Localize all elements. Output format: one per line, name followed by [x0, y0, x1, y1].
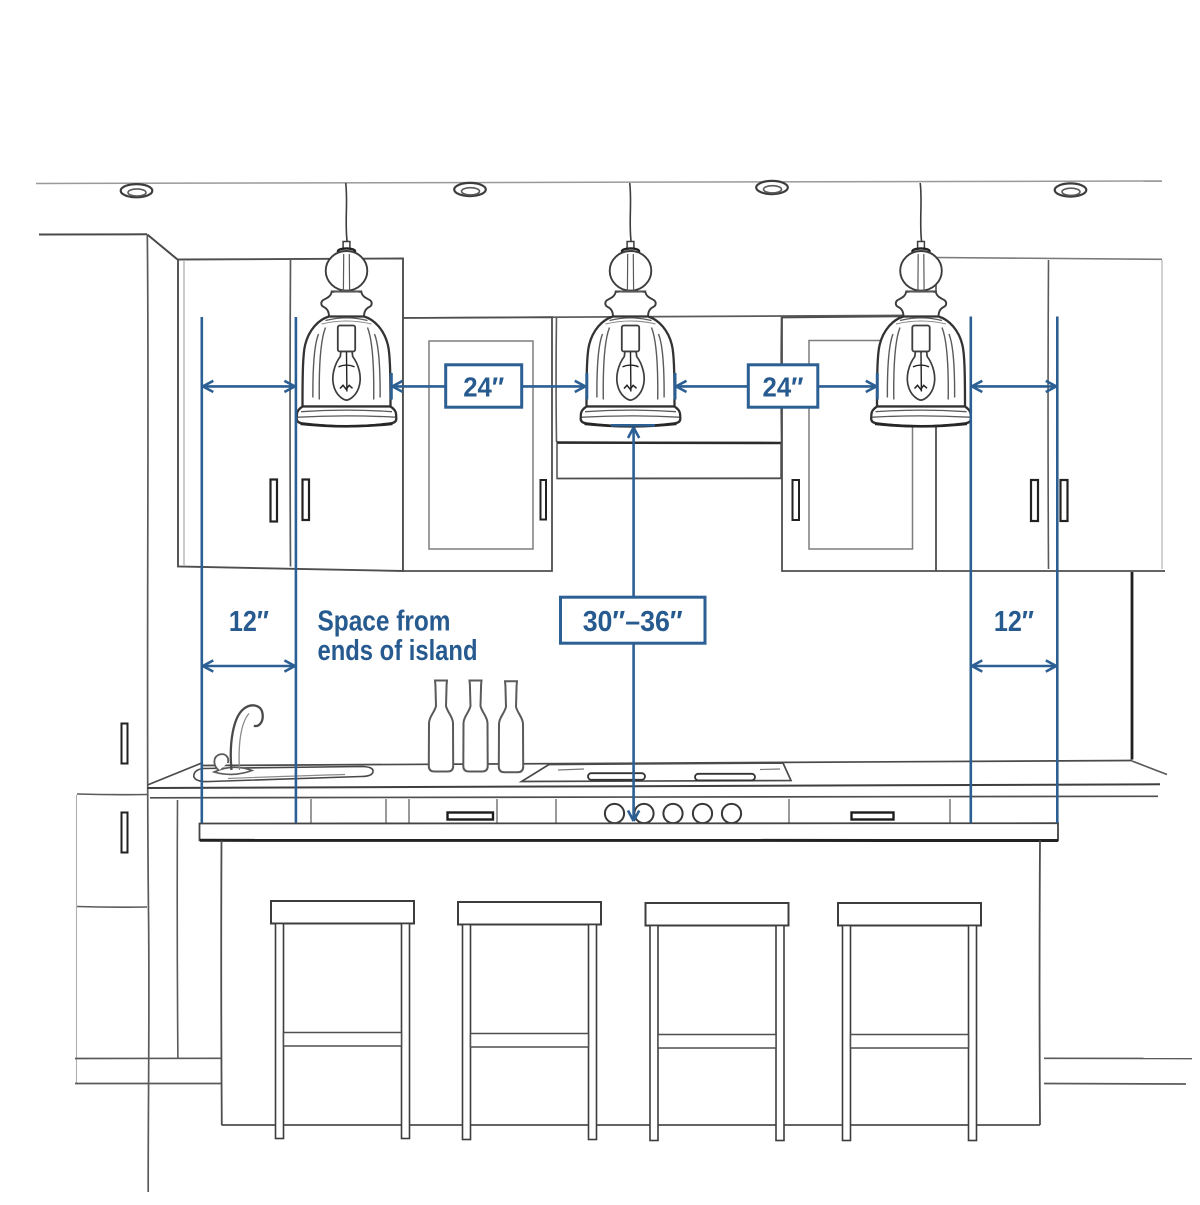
svg-text:ends of island: ends of island: [318, 635, 478, 667]
svg-text:24″: 24″: [463, 372, 504, 403]
svg-text:12″: 12″: [229, 606, 269, 638]
svg-text:24″: 24″: [763, 372, 804, 403]
svg-text:Space from: Space from: [318, 605, 451, 637]
svg-text:30″–36″: 30″–36″: [583, 606, 683, 638]
svg-text:12″: 12″: [994, 606, 1034, 638]
